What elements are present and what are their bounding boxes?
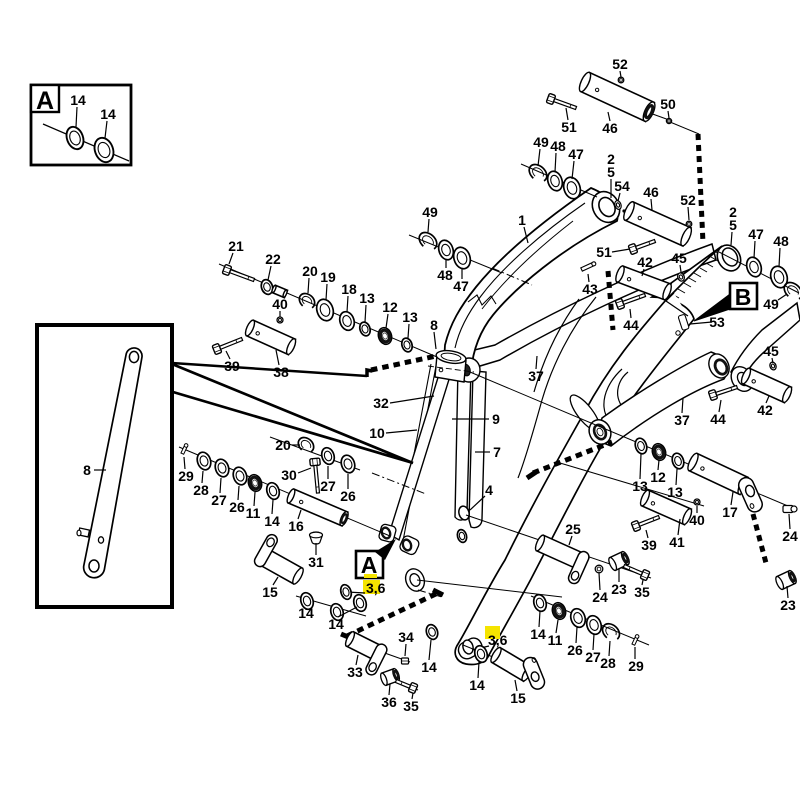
svg-text:14: 14 — [298, 605, 314, 621]
svg-text:20: 20 — [275, 437, 291, 453]
svg-text:10: 10 — [369, 425, 385, 441]
svg-text:39: 39 — [641, 537, 657, 553]
svg-text:24: 24 — [592, 589, 608, 605]
svg-text:8: 8 — [83, 462, 91, 478]
svg-text:28: 28 — [193, 482, 209, 498]
svg-text:A: A — [36, 87, 54, 115]
svg-text:8: 8 — [430, 317, 438, 333]
svg-text:15: 15 — [510, 690, 526, 706]
svg-text:33: 33 — [347, 664, 363, 680]
svg-text:1: 1 — [518, 212, 526, 228]
svg-text:28: 28 — [600, 655, 616, 671]
svg-text:50: 50 — [660, 96, 676, 112]
svg-text:14: 14 — [100, 106, 116, 122]
svg-text:14: 14 — [421, 659, 437, 675]
svg-text:32: 32 — [373, 395, 389, 411]
svg-text:40: 40 — [689, 512, 705, 528]
svg-text:45: 45 — [763, 343, 779, 359]
svg-text:14: 14 — [70, 92, 86, 108]
svg-text:44: 44 — [623, 317, 639, 333]
svg-text:42: 42 — [757, 402, 773, 418]
svg-text:46: 46 — [602, 120, 618, 136]
svg-text:22: 22 — [265, 251, 281, 267]
svg-text:26: 26 — [229, 499, 245, 515]
svg-text:7: 7 — [493, 444, 501, 460]
svg-text:3,6: 3,6 — [366, 580, 386, 596]
svg-text:26: 26 — [567, 642, 583, 658]
svg-text:31: 31 — [308, 554, 324, 570]
svg-text:19: 19 — [320, 269, 336, 285]
svg-text:49: 49 — [422, 204, 438, 220]
svg-text:54: 54 — [614, 178, 630, 194]
svg-text:18: 18 — [341, 281, 357, 297]
svg-text:13: 13 — [632, 478, 648, 494]
svg-text:27: 27 — [585, 649, 601, 665]
svg-text:52: 52 — [680, 192, 696, 208]
svg-text:42: 42 — [637, 254, 653, 270]
svg-text:29: 29 — [178, 468, 194, 484]
svg-text:35: 35 — [634, 584, 650, 600]
svg-text:14: 14 — [530, 626, 546, 642]
svg-text:11: 11 — [548, 632, 563, 648]
svg-text:17: 17 — [722, 504, 738, 520]
svg-text:20: 20 — [302, 263, 318, 279]
svg-text:48: 48 — [437, 267, 453, 283]
svg-text:23: 23 — [780, 597, 796, 613]
svg-text:15: 15 — [262, 584, 278, 600]
svg-text:27: 27 — [320, 478, 336, 494]
svg-text:51: 51 — [596, 244, 612, 260]
svg-text:12: 12 — [650, 469, 666, 485]
svg-text:41: 41 — [669, 534, 685, 550]
svg-text:47: 47 — [453, 278, 469, 294]
svg-text:52: 52 — [612, 56, 628, 72]
svg-text:43: 43 — [582, 281, 598, 297]
svg-text:13: 13 — [667, 484, 683, 500]
svg-text:49: 49 — [533, 134, 549, 150]
svg-text:14: 14 — [264, 513, 280, 529]
svg-text:11: 11 — [246, 505, 261, 521]
svg-text:53: 53 — [709, 314, 725, 330]
svg-text:47: 47 — [748, 226, 764, 242]
svg-text:29: 29 — [628, 658, 644, 674]
svg-text:44: 44 — [710, 411, 726, 427]
svg-text:38: 38 — [273, 364, 289, 380]
svg-text:49: 49 — [763, 296, 779, 312]
svg-text:B: B — [735, 284, 752, 310]
svg-text:4: 4 — [485, 482, 493, 498]
svg-text:45: 45 — [671, 250, 687, 266]
svg-text:47: 47 — [568, 146, 584, 162]
svg-text:16: 16 — [288, 518, 304, 534]
svg-text:48: 48 — [773, 233, 789, 249]
svg-text:35: 35 — [403, 698, 419, 714]
svg-text:51: 51 — [561, 119, 577, 135]
svg-text:39: 39 — [224, 358, 240, 374]
svg-text:5: 5 — [729, 217, 737, 233]
svg-text:12: 12 — [382, 299, 398, 315]
svg-text:3,6: 3,6 — [488, 632, 508, 648]
svg-text:23: 23 — [611, 581, 627, 597]
svg-text:30: 30 — [281, 467, 297, 483]
svg-text:14: 14 — [469, 677, 485, 693]
svg-text:34: 34 — [398, 629, 414, 645]
svg-text:13: 13 — [402, 309, 418, 325]
svg-text:26: 26 — [340, 488, 356, 504]
svg-text:21: 21 — [228, 238, 244, 254]
svg-text:24: 24 — [782, 528, 798, 544]
svg-text:25: 25 — [565, 521, 581, 537]
svg-text:14: 14 — [328, 616, 344, 632]
svg-text:37: 37 — [674, 412, 690, 428]
svg-text:27: 27 — [211, 492, 227, 508]
svg-text:46: 46 — [643, 184, 659, 200]
svg-text:9: 9 — [492, 411, 500, 427]
svg-text:48: 48 — [550, 138, 566, 154]
svg-text:36: 36 — [381, 694, 397, 710]
svg-text:40: 40 — [272, 296, 288, 312]
svg-text:37: 37 — [528, 368, 544, 384]
svg-text:13: 13 — [359, 290, 375, 306]
